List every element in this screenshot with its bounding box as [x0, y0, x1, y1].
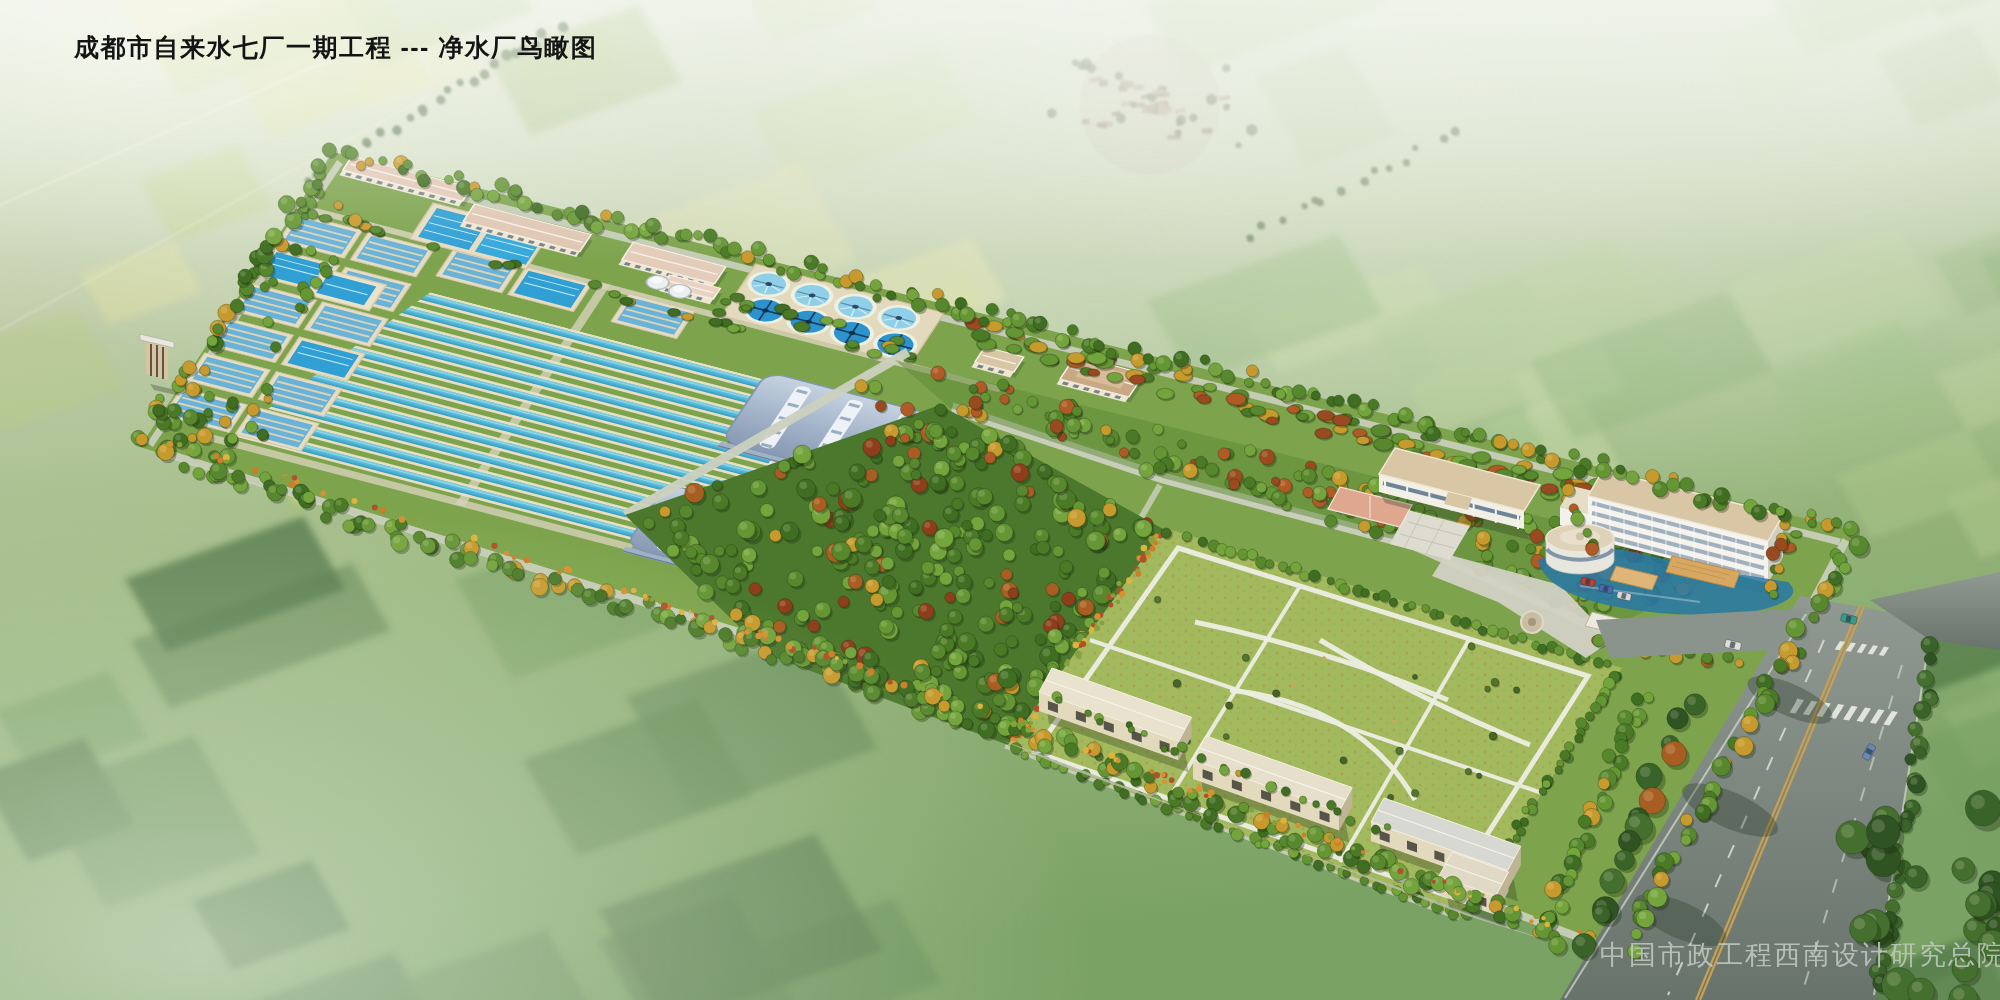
designer-credit: 中国市政工程西南设计研究总院: [1600, 937, 2000, 973]
page-title: 成都市自来水七厂一期工程 --- 净水厂鸟瞰图: [74, 31, 597, 64]
scene-canvas: [0, 0, 2000, 1000]
aerial-rendering: 成都市自来水七厂一期工程 --- 净水厂鸟瞰图 中国市政工程西南设计研究总院: [0, 0, 2000, 1000]
